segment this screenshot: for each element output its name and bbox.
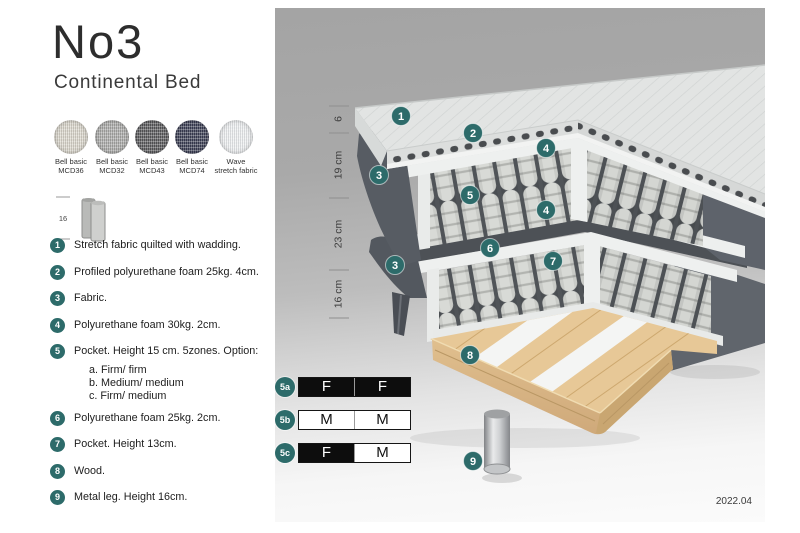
legend-badge: 2 xyxy=(50,265,65,280)
materials-legend: 1Stretch fabric quilted with wadding. 2P… xyxy=(50,238,288,517)
legend-badge: 8 xyxy=(50,464,65,479)
svg-text:7: 7 xyxy=(550,256,556,268)
callout-3a: 3 xyxy=(370,166,389,185)
legend-item-4: 4Polyurethane foam 30kg. 2cm. xyxy=(50,318,288,333)
legend-badge: 6 xyxy=(50,411,65,426)
svg-text:4: 4 xyxy=(543,143,550,155)
legend-badge: 5 xyxy=(50,344,65,359)
swatch-label: Wavestretch fabric xyxy=(213,157,259,175)
firmness-bar: F M xyxy=(298,443,411,463)
callout-9: 9 xyxy=(464,452,483,471)
page-subtitle: Continental Bed xyxy=(54,72,201,94)
legend-item-6: 6Polyurethane foam 25kg. 2cm. xyxy=(50,411,288,426)
legend-badge: 9 xyxy=(50,490,65,505)
svg-text:9: 9 xyxy=(470,456,476,468)
legend-item-9: 9Metal leg. Height 16cm. xyxy=(50,490,288,505)
product-sheet: 6 19 cm 23 cm 16 cm xyxy=(0,0,800,533)
legend-badge: 7 xyxy=(50,437,65,452)
callout-5: 5 xyxy=(461,186,480,205)
firmness-bar: M M xyxy=(298,410,411,430)
page-title: No3 xyxy=(52,14,144,69)
swatch-label: Bell basicMCD74 xyxy=(169,157,215,175)
firmness-bar: F F xyxy=(298,377,411,397)
fabric-swatch-mcd32 xyxy=(95,120,129,154)
svg-text:2: 2 xyxy=(470,128,476,140)
legend-badge: 1 xyxy=(50,238,65,253)
callout-8: 8 xyxy=(461,346,480,365)
callout-4b: 4 xyxy=(537,201,556,220)
firmness-cell: M xyxy=(354,444,410,462)
fabric-swatch-mcd43 xyxy=(135,120,169,154)
callout-3b: 3 xyxy=(386,256,405,275)
svg-text:3: 3 xyxy=(392,260,398,272)
svg-text:3: 3 xyxy=(376,170,382,182)
fabric-swatch-mcd36 xyxy=(54,120,88,154)
svg-text:1: 1 xyxy=(398,111,404,123)
firmness-cell: M xyxy=(354,411,410,429)
swatch-label: Bell basicMCD36 xyxy=(48,157,94,175)
legend-item-2: 2Profiled polyurethane foam 25kg. 4cm. xyxy=(50,265,288,280)
callout-7: 7 xyxy=(544,252,563,271)
firmness-cell: F xyxy=(299,444,354,462)
dim-leg: 16 cm xyxy=(333,279,345,308)
leg-height-value: 16 xyxy=(59,214,67,223)
version-label: 2022.04 xyxy=(716,496,752,507)
firmness-cell: M xyxy=(299,411,354,429)
callout-4a: 4 xyxy=(537,139,556,158)
svg-text:4: 4 xyxy=(543,205,550,217)
firmness-cell: F xyxy=(354,378,410,396)
legend-item-1: 1Stretch fabric quilted with wadding. xyxy=(50,238,288,253)
legend-badge: 3 xyxy=(50,291,65,306)
legend-item-5-options: a. Firm/ firm b. Medium/ medium c. Firm/… xyxy=(89,364,288,403)
firmness-badge: 5b xyxy=(275,410,295,430)
callout-6: 6 xyxy=(481,239,500,258)
callout-1: 1 xyxy=(392,107,411,126)
legend-item-3: 3Fabric. xyxy=(50,291,288,306)
fabric-swatch-mcd74 xyxy=(175,120,209,154)
legend-item-7: 7Pocket. Height 13cm. xyxy=(50,437,288,452)
dim-lower: 23 cm xyxy=(333,219,345,248)
svg-text:8: 8 xyxy=(467,350,473,362)
svg-text:5: 5 xyxy=(467,190,473,202)
legend-badge: 4 xyxy=(50,318,65,333)
callout-2: 2 xyxy=(464,124,483,143)
legend-item-8: 8Wood. xyxy=(50,464,288,479)
firmness-badge: 5a xyxy=(275,377,295,397)
fabric-swatch-wave xyxy=(219,120,253,154)
firmness-cell: F xyxy=(299,378,354,396)
legend-item-5: 5Pocket. Height 15 cm. 5zones. Option: xyxy=(50,344,288,359)
dim-upper: 19 cm xyxy=(333,150,345,179)
dim-topper: 6 xyxy=(333,116,345,122)
leg-height-icon: 16 xyxy=(53,192,115,244)
svg-text:6: 6 xyxy=(487,243,493,255)
firmness-badge: 5c xyxy=(275,443,295,463)
